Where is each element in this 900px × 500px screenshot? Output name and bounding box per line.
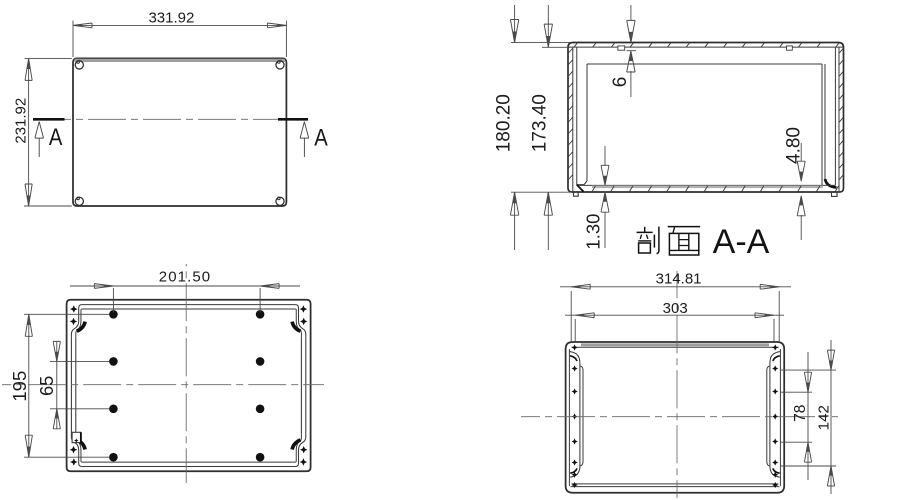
svg-text:180.20: 180.20	[494, 94, 515, 152]
svg-text:331.92: 331.92	[148, 10, 194, 27]
svg-text:314.81: 314.81	[656, 271, 702, 288]
svg-text:78: 78	[792, 405, 809, 422]
svg-text:231.92: 231.92	[12, 98, 29, 144]
svg-text:A: A	[314, 125, 328, 152]
svg-text:1.30: 1.30	[582, 214, 603, 250]
svg-text:A-A: A-A	[713, 223, 770, 261]
svg-text:4.80: 4.80	[784, 127, 805, 164]
svg-text:303: 303	[663, 300, 688, 317]
svg-text:173.40: 173.40	[529, 94, 550, 152]
svg-text:6: 6	[610, 77, 631, 88]
svg-text:195: 195	[9, 371, 30, 402]
svg-text:201.50: 201.50	[159, 269, 211, 286]
svg-text:A: A	[49, 124, 63, 151]
svg-text:65: 65	[37, 376, 57, 396]
svg-text:142: 142	[815, 405, 832, 430]
